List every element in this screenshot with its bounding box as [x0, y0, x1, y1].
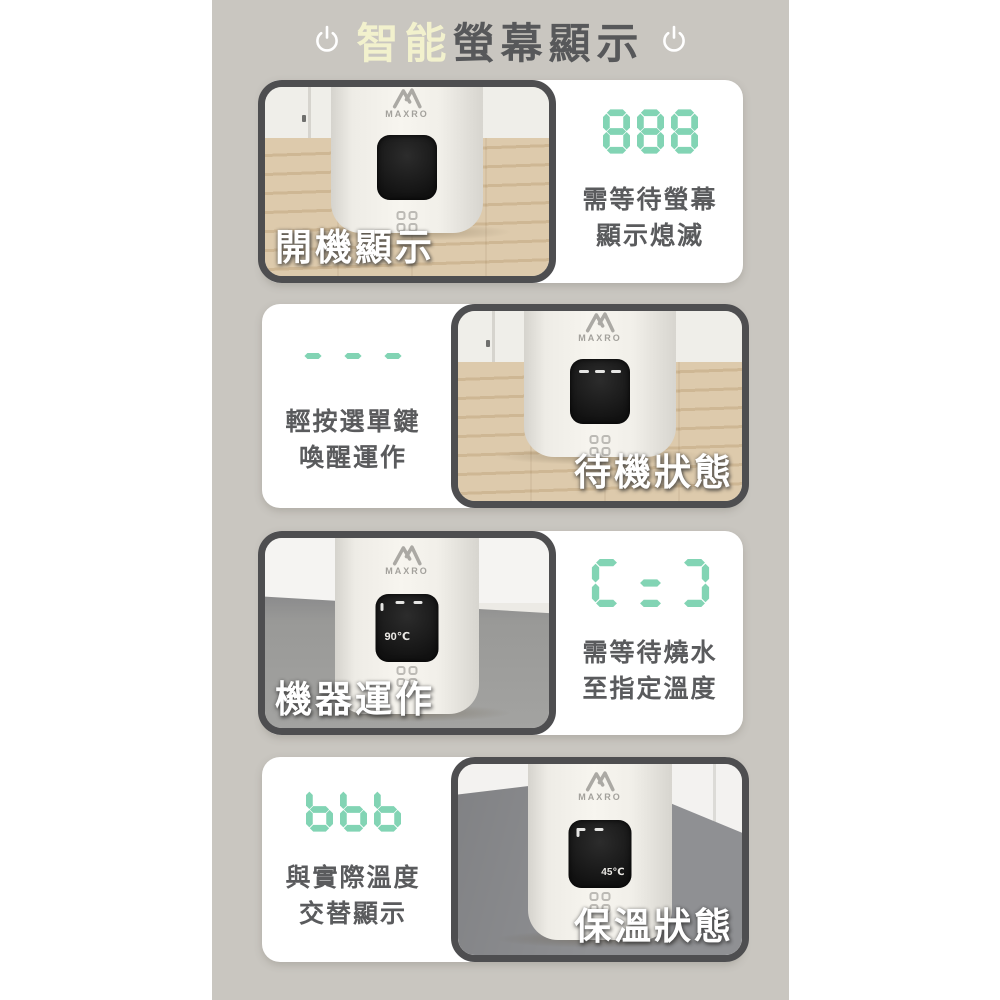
maxro-logo-icon [584, 311, 616, 333]
page-title-highlight: 智能 [356, 20, 452, 67]
maxro-logo: MAXRO [385, 87, 429, 119]
caption: 輕按選單鍵 喚醒運作 [285, 404, 420, 477]
brand-text: MAXRO [385, 566, 429, 576]
screen-temperature: 90℃ [385, 630, 411, 643]
door-frame-line [308, 87, 311, 138]
product-photo-standby: MAXRO 待機狀態 [451, 304, 749, 508]
screen-tick [577, 828, 580, 837]
caption: 需等待燒水 至指定溫度 [582, 635, 717, 708]
caption-line1: 需等待燒水 [582, 639, 717, 667]
product-photo-operating: MAXRO 90℃ 機器運作 [258, 531, 556, 735]
maxro-logo: MAXRO [578, 311, 622, 343]
device-screen-off [377, 135, 437, 200]
brand-text: MAXRO [578, 333, 622, 343]
screen-dash [414, 601, 423, 604]
screen-dash [611, 370, 621, 373]
product-photo-power-on: MAXRO 開機顯示 [258, 80, 556, 283]
caption: 需等待螢幕 顯示熄滅 [582, 182, 717, 255]
door-frame-line [492, 311, 495, 362]
caption: 與實際溫度 交替顯示 [285, 860, 420, 933]
photo-label: 機器運作 [275, 669, 435, 723]
section-keep-warm: 與實際溫度 交替顯示 MAXRO [262, 757, 743, 962]
screen-dash [396, 601, 405, 604]
segment-display-dashes [301, 336, 405, 376]
info-power-on: 需等待螢幕 顯示熄滅 [557, 80, 743, 283]
screen-tick [381, 603, 384, 611]
brand-text: MAXRO [385, 109, 429, 119]
caption-line1: 與實際溫度 [285, 864, 420, 892]
section-standby: 輕按選單鍵 喚醒運作 MAXRO [262, 304, 743, 508]
page-title-rest: 螢幕顯示 [453, 20, 645, 67]
photo-label: 保溫狀態 [574, 896, 734, 950]
kettle-device: MAXRO [331, 85, 483, 233]
screen-temperature: 45℃ [601, 867, 624, 878]
caption-line2: 顯示熄滅 [596, 222, 704, 250]
page-title: 智能螢幕顯示 [356, 10, 644, 71]
screen-dash [595, 828, 604, 831]
caption-line1: 輕按選單鍵 [285, 408, 420, 436]
caption-line1: 需等待螢幕 [582, 186, 717, 214]
brand-text: MAXRO [578, 792, 622, 802]
power-icon [312, 24, 342, 56]
power-icon [659, 24, 689, 56]
segment-display-bbb [306, 787, 401, 832]
device-screen-keep-warm: 45℃ [569, 820, 632, 888]
section-power-on: MAXRO 開機顯示 需等待螢幕 顯示熄滅 [262, 80, 743, 283]
kettle-device: MAXRO [524, 309, 676, 457]
wall-mark [302, 115, 306, 122]
maxro-logo-icon [391, 544, 423, 566]
maxro-logo-icon [584, 770, 616, 792]
info-standby: 輕按選單鍵 喚醒運作 [262, 304, 444, 508]
maxro-logo-icon [391, 87, 423, 109]
device-screen-standby [570, 359, 630, 424]
infographic-canvas: 智能螢幕顯示 MAXRO [212, 0, 789, 1000]
screen-dash [579, 370, 589, 373]
segment-display-brackets [591, 559, 710, 607]
photo-label: 開機顯示 [275, 217, 435, 271]
maxro-logo: MAXRO [578, 770, 622, 802]
title-row: 智能螢幕顯示 [212, 12, 789, 68]
photo-label: 待機狀態 [574, 442, 734, 496]
caption-line2: 至指定溫度 [582, 675, 717, 703]
maxro-logo: MAXRO [385, 544, 429, 576]
info-keep-warm: 與實際溫度 交替顯示 [262, 757, 444, 962]
info-operating: 需等待燒水 至指定溫度 [557, 531, 743, 735]
device-screen-operating: 90℃ [376, 594, 439, 662]
wall-mark [486, 340, 490, 347]
caption-line2: 交替顯示 [299, 900, 407, 928]
screen-dash [595, 370, 605, 373]
product-photo-keep-warm: MAXRO 45℃ 保溫狀態 [451, 757, 749, 962]
caption-line2: 喚醒運作 [299, 444, 407, 472]
segment-display-888 [603, 109, 698, 154]
section-operating: MAXRO 90℃ 機器運作 需等待燒水 至指定溫度 [262, 531, 743, 735]
